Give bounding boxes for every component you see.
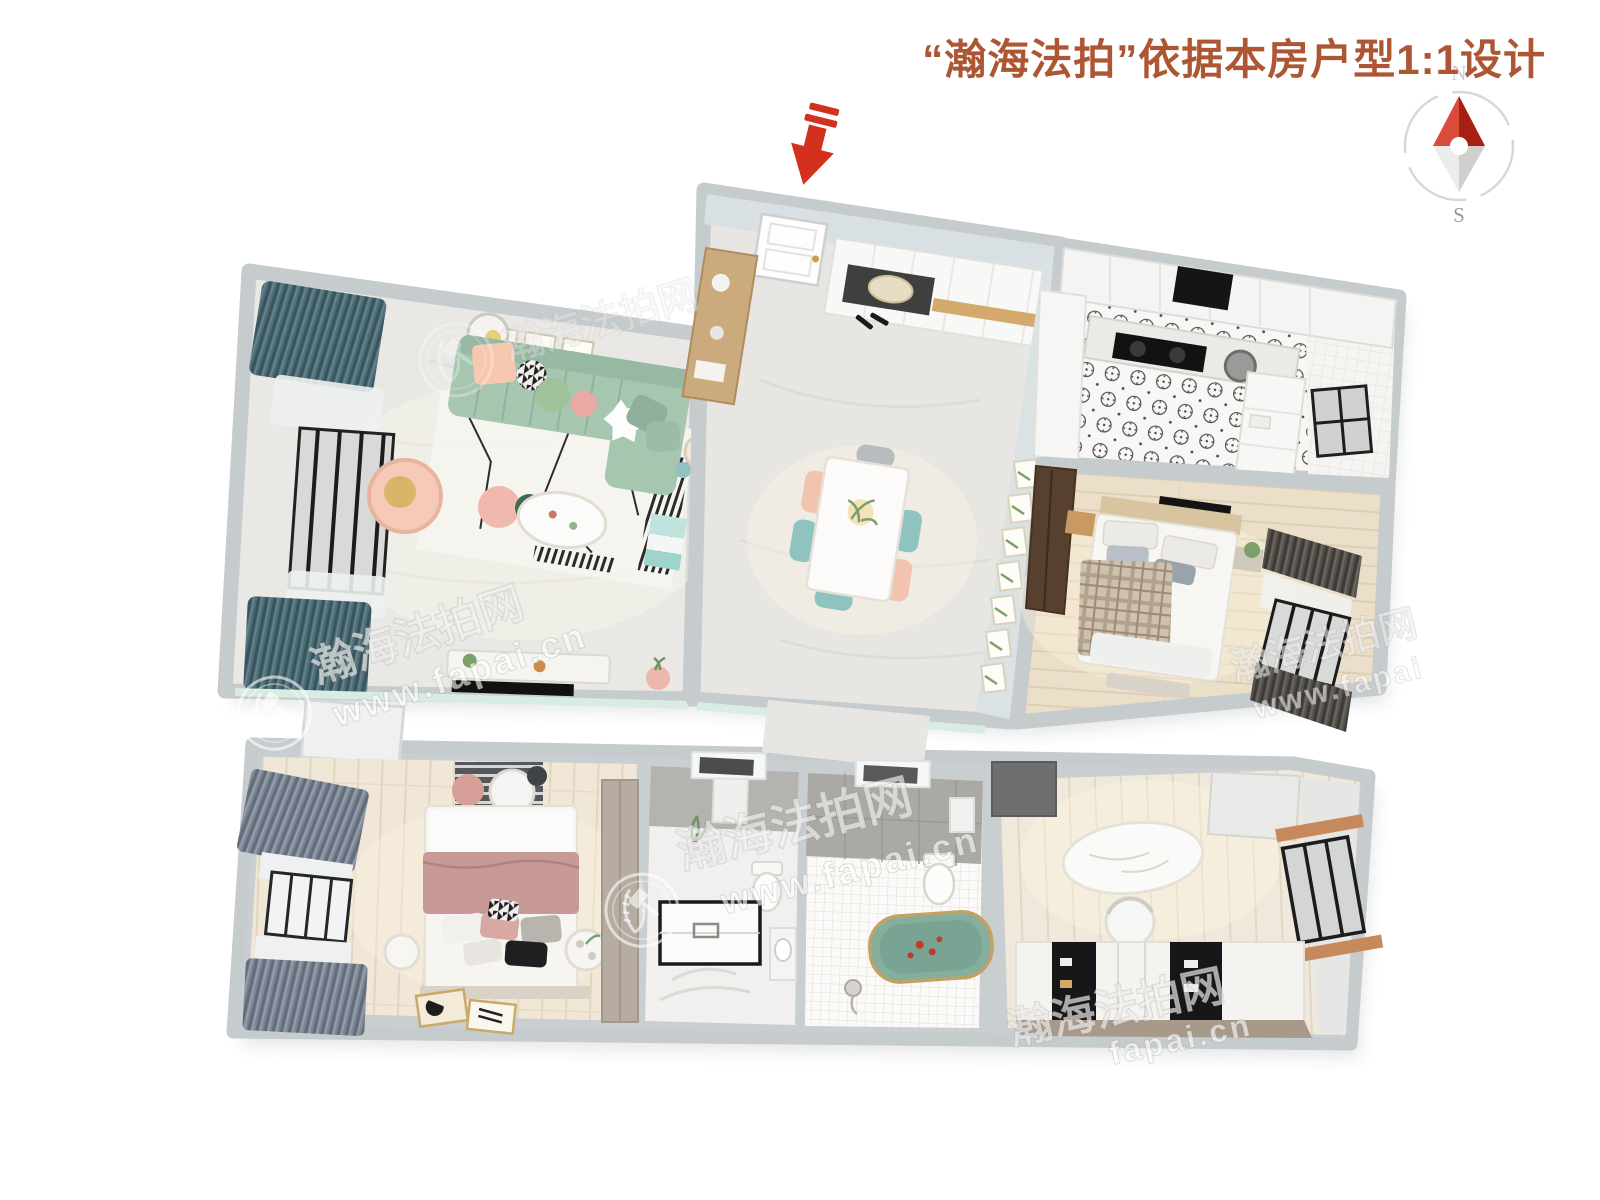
entrance-arrow-icon [782, 100, 845, 190]
bedroom-2 [236, 757, 645, 1036]
study-chair [1106, 898, 1154, 946]
kitchen-tall-cabinet [1235, 372, 1306, 486]
pink-pouf [478, 486, 520, 528]
entrance-door [752, 214, 827, 286]
compass-hub [1450, 137, 1468, 155]
entry-dining-hall [683, 190, 1070, 730]
nightstand-left [1065, 510, 1096, 537]
armchair [369, 460, 441, 532]
plant-pot [646, 666, 670, 690]
bathroom-1-door-leaf [699, 757, 754, 776]
bed-2 [423, 806, 579, 992]
compass-south-label: S [1453, 203, 1465, 227]
floorplan-render: 瀚海法拍网 瀚海法拍网 www.fapai.cn 瀚海法拍网 www.fapai… [0, 0, 1600, 1200]
page-title: “瀚海法拍”依据本房户型1:1设计 [922, 26, 1546, 87]
bathtub [868, 910, 994, 984]
kitchen-divider-cabinet [1034, 290, 1086, 462]
nightstand-right [1233, 542, 1264, 573]
floorplan-page: 瀚海法拍网 瀚海法拍网 www.fapai.cn 瀚海法拍网 www.fapai… [0, 0, 1600, 1200]
kitchen-window [1312, 386, 1372, 456]
bedroom-2-window [266, 872, 352, 942]
pink-stool [452, 774, 484, 806]
kitchen [1034, 245, 1399, 486]
tray-table-right [566, 930, 606, 970]
vanity-1 [770, 928, 796, 980]
ball-lamp-left [385, 935, 419, 969]
study-gray-cabinet [992, 762, 1056, 816]
